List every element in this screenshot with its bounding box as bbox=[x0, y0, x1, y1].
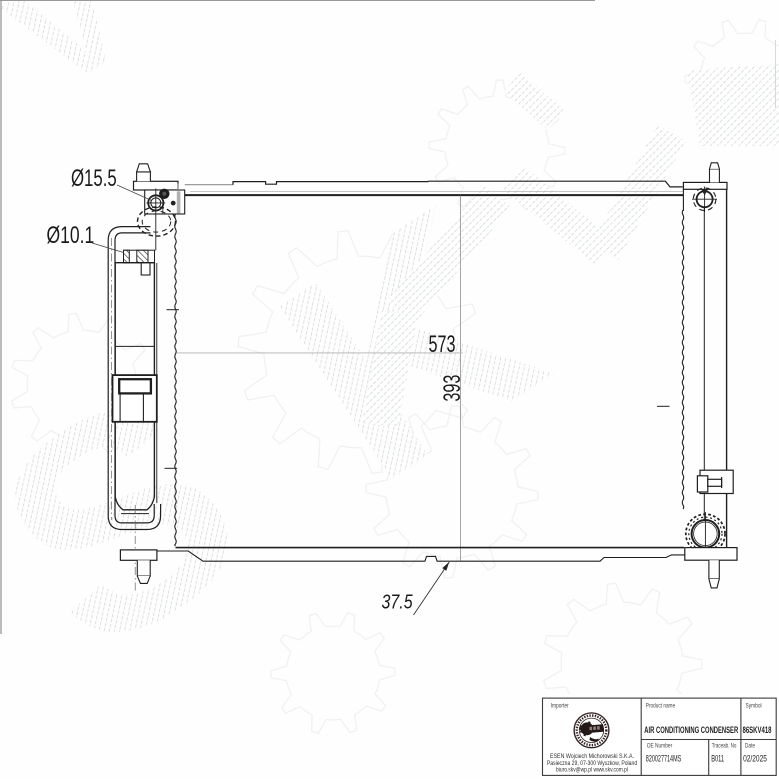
svg-text:OE Number: OE Number bbox=[647, 743, 673, 750]
svg-text:02/2025: 02/2025 bbox=[743, 754, 767, 764]
svg-text:ESEN Wojciech Michorowski S.K.: ESEN Wojciech Michorowski S.K.A. bbox=[550, 754, 634, 760]
svg-text:Date: Date bbox=[745, 743, 755, 750]
svg-text:Ø15.5: Ø15.5 bbox=[71, 165, 117, 192]
svg-text:86SKV418: 86SKV418 bbox=[743, 724, 772, 735]
svg-text:Importer: Importer bbox=[551, 703, 569, 710]
svg-text:AIR CONDITIONING CONDENSER: AIR CONDITIONING CONDENSER bbox=[644, 724, 738, 735]
svg-text:Product name: Product name bbox=[646, 703, 675, 710]
svg-text:37.5: 37.5 bbox=[382, 591, 414, 613]
svg-text:Traceab. No: Traceab. No bbox=[712, 743, 737, 750]
svg-text:573: 573 bbox=[429, 331, 456, 358]
svg-text:393: 393 bbox=[439, 375, 466, 402]
svg-text:Ø10.1: Ø10.1 bbox=[47, 222, 95, 248]
svg-text:B011: B011 bbox=[711, 753, 724, 764]
svg-text:820027714MS: 820027714MS bbox=[646, 753, 682, 764]
svg-text:Symbol: Symbol bbox=[746, 703, 762, 710]
svg-text:biuro.skv@wp.pl www.skv.com.: biuro.skv@wp.pl www.skv.com.pl bbox=[556, 767, 628, 774]
